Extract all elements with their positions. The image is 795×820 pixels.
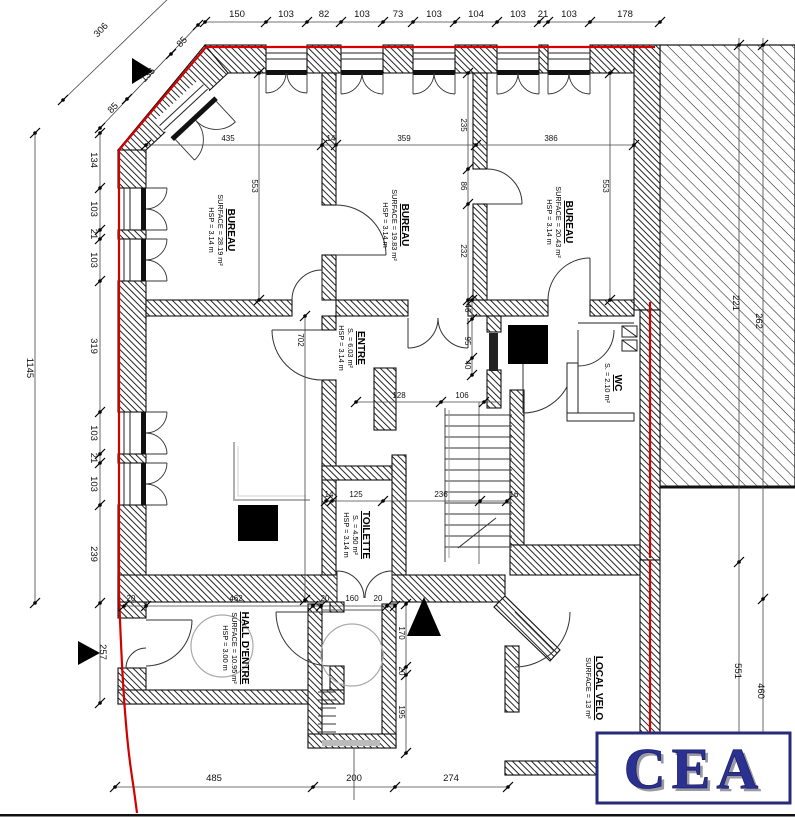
room-surface-local-velo: SURFACE = 13 m²: [584, 657, 593, 719]
dim-label-top-7: 103: [510, 9, 526, 20]
room-name-entre: ENTRE: [355, 331, 366, 365]
dim-label-interior-8: 232: [459, 244, 468, 258]
room-label-toilette: TOILETTES. = 4.50 m²HSP = 3.14 m: [342, 511, 371, 559]
staircase: [445, 402, 512, 564]
logo-text: CEA: [624, 736, 764, 801]
dim-label-left-10: 1145: [24, 358, 35, 378]
dim-label-interior-9: 702: [296, 333, 305, 347]
dim-label-interior-11: 95: [463, 337, 472, 346]
dim-label-interior-1: 14: [327, 134, 336, 143]
dim-label-left-6: 21: [88, 453, 99, 464]
dim-label-interior-16: 125: [349, 490, 363, 499]
dim-label-top-0: 150: [229, 9, 245, 20]
dim-label-right-2: 551: [732, 663, 743, 679]
dim-label-top-5: 103: [426, 9, 442, 20]
dim-label-top-9: 103: [561, 9, 577, 20]
room-name-hall-entre: HALL D'ENTRE: [239, 612, 250, 685]
bottom-border-rule: [0, 814, 795, 817]
dim-label-top-4: 73: [393, 9, 404, 20]
dim-label-interior-13: 128: [392, 391, 406, 400]
room-surface-bureau-1: SURFACE = 28.19 m²: [216, 194, 225, 266]
dim-label-interior-20: 462: [229, 594, 243, 603]
dim-label-interior-3: 386: [544, 134, 558, 143]
dim-label-interior-22: 160: [345, 594, 359, 603]
dim-label-bottom-0: 485: [206, 773, 222, 784]
dim-label-left-9: 257: [97, 644, 108, 660]
dim-label-left-0: 134: [88, 152, 99, 168]
entry-arrow-icon: [78, 641, 100, 665]
north-arrow-icon: [407, 597, 441, 636]
dim-label-interior-26: 195: [397, 705, 406, 719]
dim-label-bottom-2: 274: [443, 773, 459, 784]
cea-logo: CEA CEA: [597, 733, 790, 804]
dim-label-top-2: 82: [319, 9, 330, 20]
dim-label-interior-25: 20: [397, 667, 406, 676]
dim-label-bottom-1: 200: [346, 773, 362, 784]
dim-label-interior-14: 106: [455, 391, 469, 400]
dim-label-top-3: 103: [354, 9, 370, 20]
dim-label-left-7: 103: [88, 476, 99, 492]
dim-label-right-3: 460: [755, 683, 766, 699]
dim-tick: [58, 95, 68, 105]
room-name-bureau-1: BUREAU: [225, 209, 236, 252]
dim-label-interior-6: 235: [459, 118, 468, 132]
dim-label-interior-0: 435: [221, 134, 235, 143]
dim-label-right-1: 262: [753, 313, 764, 329]
room-hsp-entre: HSP = 3.14 m: [337, 325, 346, 371]
room-surface-hall-entre: SURFACE = 10.95 m²: [230, 612, 239, 684]
dim-label-interior-21: 20: [321, 594, 330, 603]
dim-label-interior-2: 359: [397, 134, 411, 143]
dim-label-left-8: 239: [88, 546, 99, 562]
dim-label-interior-23: 20: [374, 594, 383, 603]
dim-label-interior-4: 553: [250, 179, 259, 193]
room-surface-toilette: S. = 4.50 m²: [351, 515, 360, 556]
neighbor-building-hatch: [655, 45, 795, 487]
dim-label-interior-24: 170: [397, 626, 406, 640]
room-labels-layer: BUREAUSURFACE = 28.19 m²HSP = 3.14 mBURE…: [207, 186, 623, 720]
light-well: [318, 610, 383, 746]
dim-label-interior-15: 14: [325, 490, 334, 499]
room-hsp-bureau-1: HSP = 3.14 m: [207, 207, 216, 253]
dim-label-right-0: 221: [730, 295, 741, 311]
dim-label-interior-10: 46: [463, 304, 472, 313]
dim-tick: [166, 49, 176, 59]
room-label-wc: WCS. = 2.10 m²: [603, 363, 623, 404]
room-name-local-velo: LOCAL VELO: [593, 656, 604, 720]
room-name-bureau-2: BUREAU: [399, 204, 410, 247]
dim-label-top-8: 21: [538, 9, 549, 20]
dim-label-interior-18: 16: [510, 490, 519, 499]
dim-label-left-1: 103: [88, 201, 99, 217]
dim-tick: [122, 94, 132, 104]
dim-label-left-5: 103: [88, 425, 99, 441]
dim-label-top-6: 104: [468, 9, 484, 20]
room-hsp-hall-entre: HSP = 3.00 m: [221, 625, 230, 671]
dim-label-interior-17: 236: [434, 490, 448, 499]
dim-label-top-10: 178: [617, 9, 633, 20]
floor-plan-svg: 1501038210373103104103211031781341032110…: [0, 0, 795, 820]
room-name-wc: WC: [612, 375, 623, 392]
dim-label-left-2: 21: [88, 229, 99, 240]
room-surface-bureau-2: SURFACE = 19.83 m²: [390, 189, 399, 261]
room-surface-entre: S. = 6.03 m²: [346, 328, 355, 369]
room-label-hall-entre: HALL D'ENTRESURFACE = 10.95 m²HSP = 3.00…: [221, 612, 250, 685]
room-hsp-bureau-2: HSP = 3.14 m: [381, 202, 390, 248]
dim-label-diagonal-0: 306: [92, 21, 111, 40]
dim-label-interior-7: 86: [459, 182, 468, 191]
room-surface-bureau-3: SURFACE = 20.43 m²: [554, 186, 563, 258]
room-name-toilette: TOILETTE: [360, 511, 371, 559]
room-label-bureau-3: BUREAUSURFACE = 20.43 m²HSP = 3.14 m: [545, 186, 574, 258]
room-hsp-toilette: HSP = 3.14 m: [342, 512, 351, 558]
duct-shaft-room: [238, 505, 278, 541]
duct-shaft-wc: [508, 325, 548, 364]
room-label-entre: ENTRES. = 6.03 m²HSP = 3.14 m: [337, 325, 366, 371]
room-surface-wc: S. = 2.10 m²: [603, 363, 612, 404]
room-hsp-bureau-3: HSP = 3.14 m: [545, 199, 554, 245]
dim-label-top-1: 103: [278, 9, 294, 20]
dim-label-interior-5: 553: [601, 179, 610, 193]
dim-label-interior-12: 40: [463, 361, 472, 370]
dim-label-interior-19: 20: [127, 594, 136, 603]
room-label-local-velo: LOCAL VELOSURFACE = 13 m²: [584, 656, 604, 720]
dim-label-diagonal-3: 85: [106, 101, 121, 116]
floor-plan-page: 1501038210373103104103211031781341032110…: [0, 0, 795, 820]
dim-label-left-4: 319: [88, 338, 99, 354]
room-name-bureau-3: BUREAU: [563, 201, 574, 244]
room-label-bureau-1: BUREAUSURFACE = 28.19 m²HSP = 3.14 m: [207, 194, 236, 266]
dim-label-left-3: 103: [88, 252, 99, 268]
